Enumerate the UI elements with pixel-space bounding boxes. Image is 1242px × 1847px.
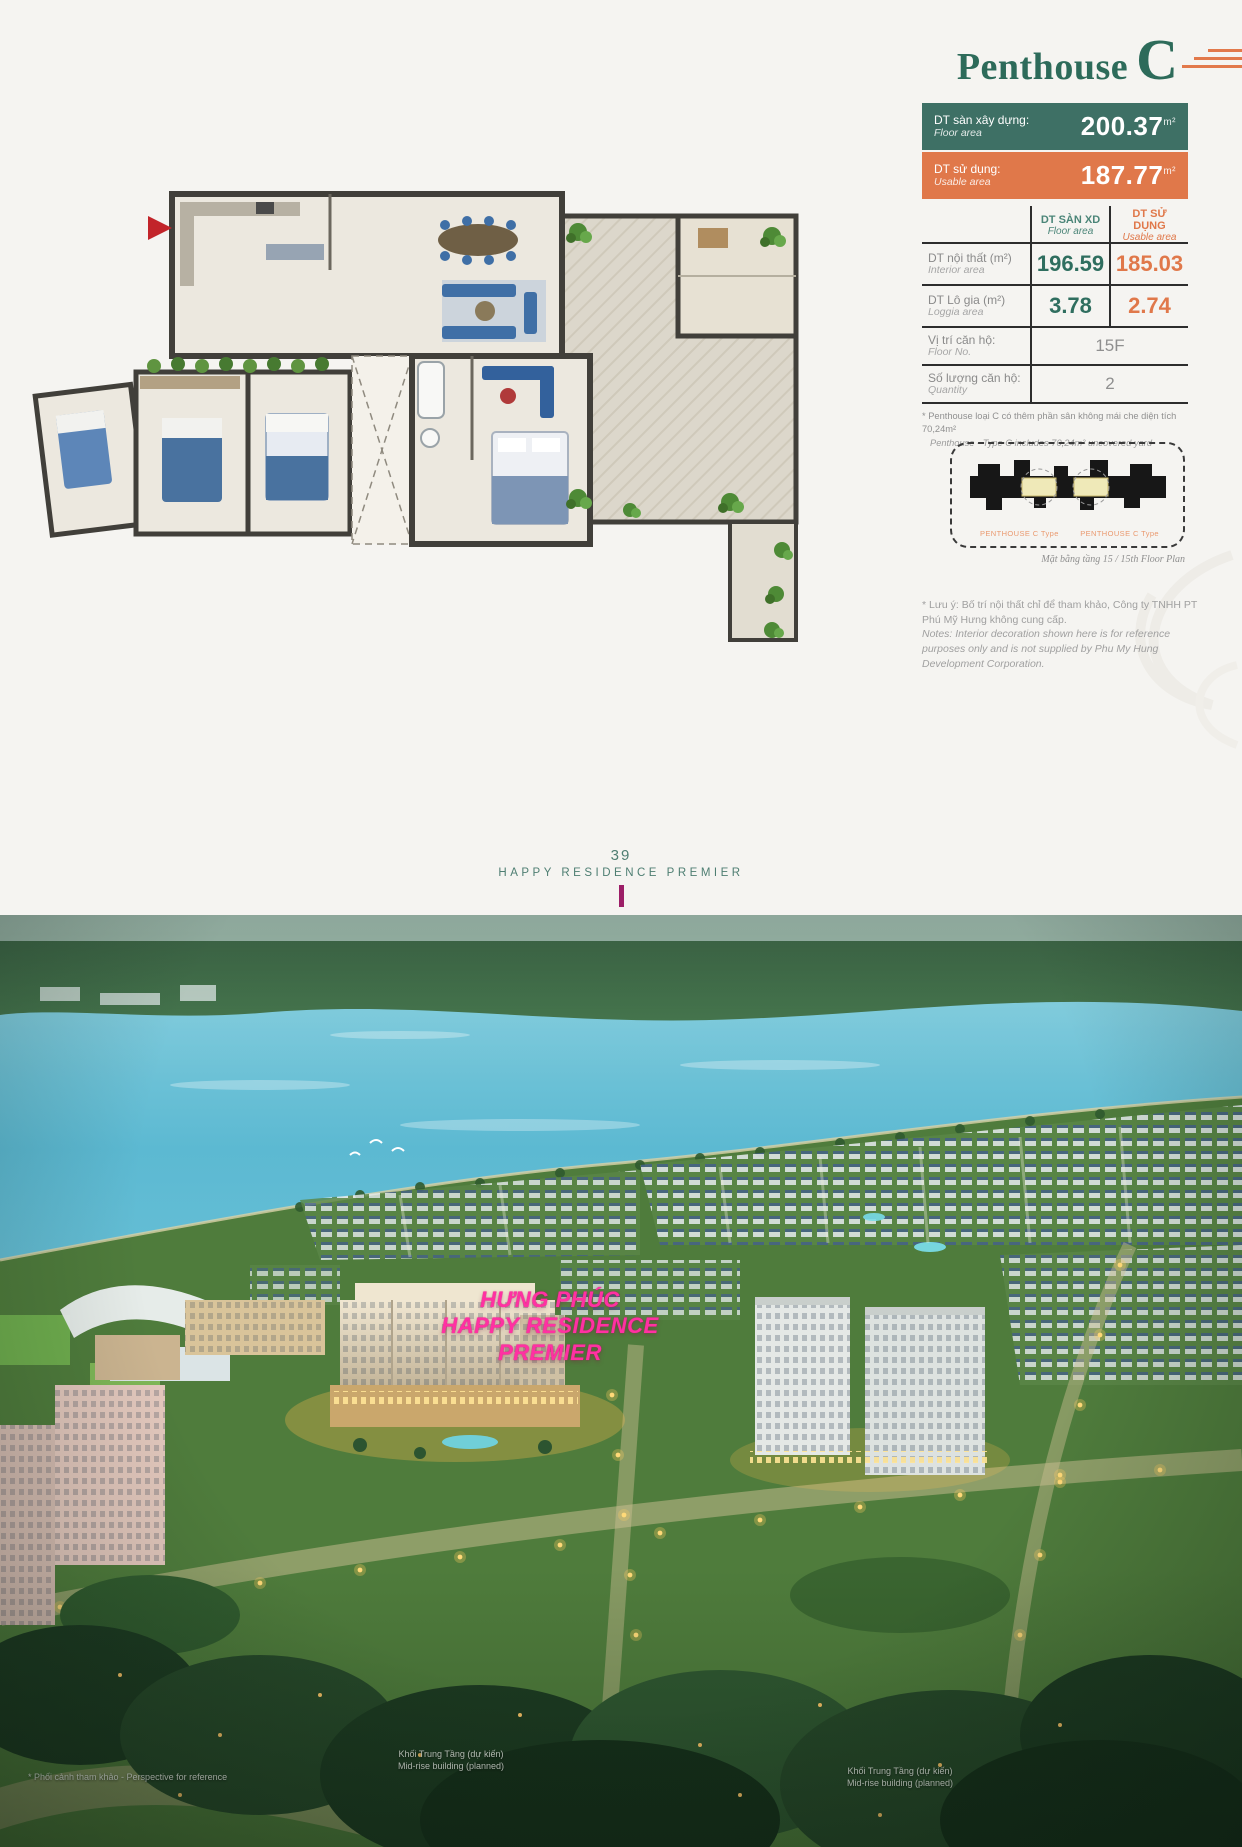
bedroom-wing bbox=[35, 372, 350, 535]
dining-table bbox=[438, 224, 518, 256]
page-title-letter: C bbox=[1136, 27, 1178, 92]
loggia-usable-value: 2.74 bbox=[1128, 294, 1171, 318]
project-sign: HƯNG PHÚC HAPPY RESIDENCE PREMIER bbox=[420, 1287, 680, 1366]
table-header-row: DT SÀN XD Floor area DT SỬ DỤNG Usable a… bbox=[922, 206, 1188, 244]
location-marker-icon bbox=[148, 216, 172, 240]
floor-area-label-en: Floor area bbox=[934, 127, 1029, 139]
header-usable-vi: DT SỬ DỤNG bbox=[1117, 208, 1182, 232]
loggia-label-en: Loggia area bbox=[928, 307, 1024, 319]
floor-area-label-vi: DT sàn xây dựng: bbox=[934, 114, 1029, 128]
notes-line5: Development Corporation. bbox=[922, 657, 1202, 672]
sign-line1: HƯNG PHÚC bbox=[420, 1287, 680, 1313]
interior-notes: * Lưu ý: Bố trí nội thất chỉ để tham khả… bbox=[922, 598, 1202, 671]
interior-floor-value: 196.59 bbox=[1037, 252, 1104, 276]
interior-label-en: Interior area bbox=[928, 265, 1024, 277]
notes-line1: * Lưu ý: Bố trí nội thất chỉ để tham khả… bbox=[922, 598, 1202, 613]
floor-no-label-en: Floor No. bbox=[928, 347, 1024, 359]
master-suite bbox=[412, 356, 590, 544]
footer-accent-bar bbox=[619, 885, 624, 907]
sign-line3: PREMIER bbox=[420, 1340, 680, 1366]
quantity-value: 2 bbox=[1105, 375, 1114, 394]
page-title: PenthouseC bbox=[957, 26, 1178, 93]
title-accent-lines-icon bbox=[1182, 44, 1242, 68]
table-row-interior: DT nội thất (m²) Interior area 196.59 18… bbox=[922, 244, 1188, 286]
usable-area-value: 187.77 bbox=[1081, 160, 1164, 190]
floor-area-unit: m² bbox=[1163, 117, 1176, 128]
notes-line4: purposes only and is not supplied by Phu… bbox=[922, 642, 1202, 657]
summary-row-floor-area: DT sàn xây dựng: Floor area 200.37m² bbox=[922, 103, 1188, 150]
floor-area-value: 200.37 bbox=[1081, 111, 1164, 141]
caption-center-en: Mid-rise building (planned) bbox=[356, 1760, 546, 1772]
caption-center-vi: Khối Trung Tầng (dự kiến) bbox=[356, 1748, 546, 1760]
notes-line3: Notes: Interior decoration shown here is… bbox=[922, 627, 1202, 642]
aerial-photo: HƯNG PHÚC HAPPY RESIDENCE PREMIER * Phối… bbox=[0, 915, 1242, 1847]
key-plan-label-right: PENTHOUSE C Type bbox=[1080, 529, 1159, 538]
photo-caption-reference: * Phối cảnh tham khảo - Perspective for … bbox=[28, 1771, 227, 1783]
page-number: 39 bbox=[0, 847, 1242, 864]
floor-no-label-vi: Vị trí căn hộ: bbox=[928, 334, 1024, 347]
key-plan-drawing bbox=[958, 452, 1178, 522]
caption-right-vi: Khối Trung Tầng (dự kiến) bbox=[800, 1765, 1000, 1777]
interior-usable-value: 185.03 bbox=[1116, 252, 1183, 276]
page-footer: 39 HAPPY RESIDENCE PREMIER bbox=[0, 847, 1242, 907]
loggia-label-vi: DT Lô gia (m²) bbox=[928, 294, 1024, 307]
void-cross bbox=[352, 356, 412, 544]
living-kitchen-block bbox=[172, 194, 562, 356]
header-floor-vi: DT SÀN XD bbox=[1041, 214, 1100, 226]
summary-row-usable-area: DT sử dụng: Usable area 187.77m² bbox=[922, 152, 1188, 199]
areas-table: DT SÀN XD Floor area DT SỬ DỤNG Usable a… bbox=[922, 206, 1188, 404]
usable-area-label-vi: DT sử dụng: bbox=[934, 163, 1001, 177]
floor-no-value: 15F bbox=[1095, 337, 1124, 356]
interior-label-vi: DT nội thất (m²) bbox=[928, 252, 1024, 265]
loggia-floor-value: 3.78 bbox=[1049, 294, 1092, 318]
brochure-page: PenthouseC bbox=[0, 0, 1242, 1847]
right-towers bbox=[730, 1297, 1010, 1492]
photo-caption-midrise-center: Khối Trung Tầng (dự kiến) Mid-rise build… bbox=[356, 1748, 546, 1772]
usable-area-label-en: Usable area bbox=[934, 176, 1001, 188]
notes-line2: Phú Mỹ Hưng không cung cấp. bbox=[922, 613, 1202, 628]
floor-plan bbox=[30, 180, 840, 650]
caption-right-en: Mid-rise building (planned) bbox=[800, 1777, 1000, 1789]
key-plan: PENTHOUSE C Type PENTHOUSE C Type bbox=[950, 442, 1185, 548]
header-floor-en: Floor area bbox=[1048, 226, 1094, 237]
table-row-floor-no: Vị trí căn hộ: Floor No. 15F bbox=[922, 328, 1188, 366]
table-row-loggia: DT Lô gia (m²) Loggia area 3.78 2.74 bbox=[922, 286, 1188, 328]
quantity-label-vi: Số lượng căn hộ: bbox=[928, 372, 1024, 385]
key-plan-caption: Mặt bằng tầng 15 / 15th Floor Plan bbox=[950, 554, 1185, 565]
key-plan-label-left: PENTHOUSE C Type bbox=[980, 529, 1059, 538]
table-row-quantity: Số lượng căn hộ: Quantity 2 bbox=[922, 366, 1188, 404]
usable-area-unit: m² bbox=[1163, 166, 1176, 177]
page-title-text: Penthouse bbox=[957, 46, 1128, 88]
header-usable-en: Usable area bbox=[1123, 232, 1177, 243]
footnote-vi: * Penthouse loại C có thêm phần sân khôn… bbox=[922, 410, 1212, 437]
aerial-photo-art bbox=[0, 915, 1242, 1847]
sign-line2: HAPPY RESIDENCE bbox=[420, 1313, 680, 1339]
quantity-label-en: Quantity bbox=[928, 385, 1024, 397]
brand-footer: HAPPY RESIDENCE PREMIER bbox=[0, 867, 1242, 879]
photo-caption-midrise-right: Khối Trung Tầng (dự kiến) Mid-rise build… bbox=[800, 1765, 1000, 1789]
